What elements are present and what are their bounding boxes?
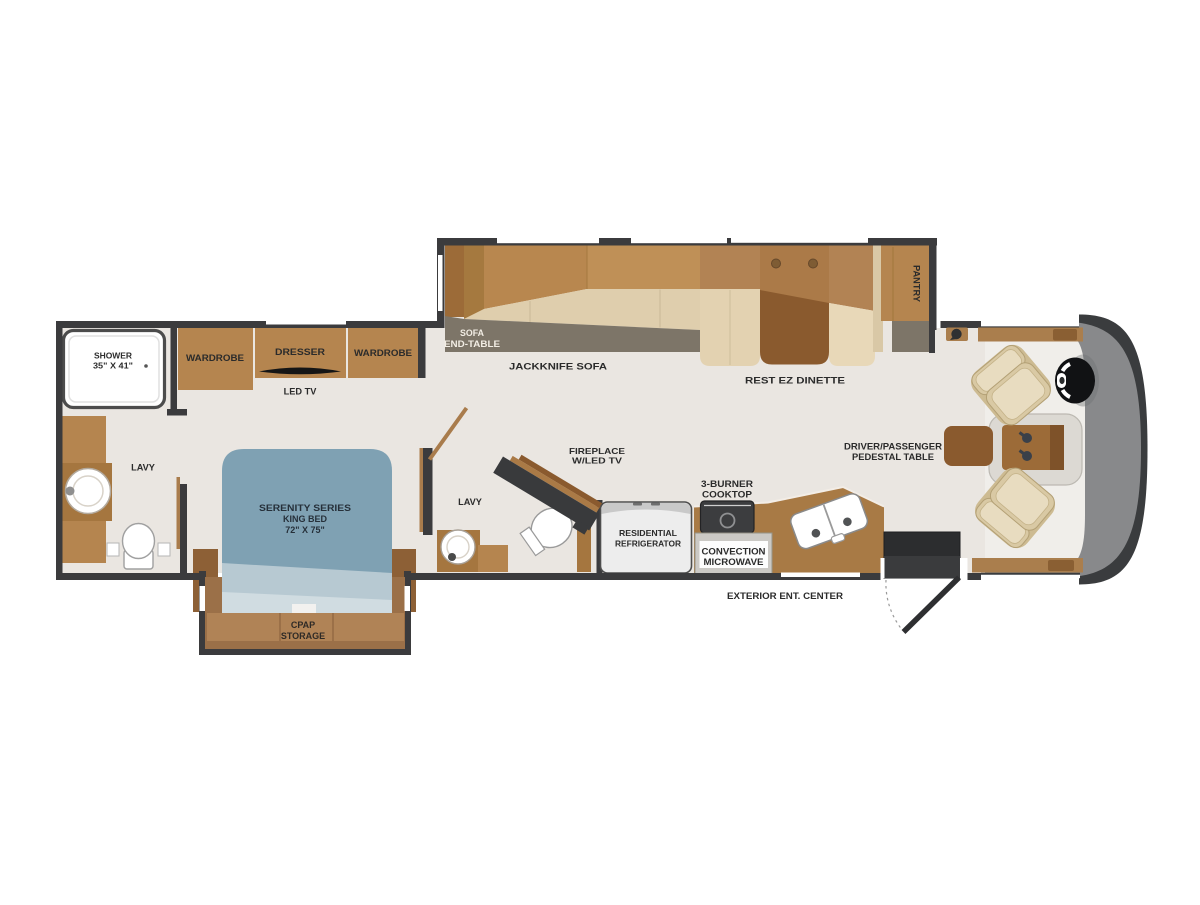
svg-text:DRESSER: DRESSER (275, 347, 326, 357)
svg-text:SHOWER: SHOWER (94, 352, 132, 361)
svg-text:LAVY: LAVY (131, 463, 155, 473)
svg-text:WARDROBE: WARDROBE (186, 353, 244, 363)
svg-text:END-TABLE: END-TABLE (444, 339, 500, 349)
svg-text:PANTRY: PANTRY (912, 265, 922, 302)
svg-text:WARDROBE: WARDROBE (354, 348, 412, 358)
svg-text:3-BURNER: 3-BURNER (701, 479, 754, 489)
svg-text:72" X 75": 72" X 75" (285, 525, 325, 535)
svg-text:DRIVER/PASSENGER: DRIVER/PASSENGER (844, 442, 943, 452)
svg-text:REFRIGERATOR: REFRIGERATOR (615, 540, 681, 549)
svg-text:EXTERIOR ENT. CENTER: EXTERIOR ENT. CENTER (727, 591, 844, 601)
svg-text:FIREPLACE: FIREPLACE (569, 446, 625, 456)
svg-text:JACKKNIFE SOFA: JACKKNIFE SOFA (509, 362, 607, 372)
svg-text:W/LED TV: W/LED TV (572, 456, 623, 466)
svg-text:SOFA: SOFA (460, 328, 485, 338)
svg-text:CPAP: CPAP (291, 620, 315, 630)
svg-text:PEDESTAL TABLE: PEDESTAL TABLE (852, 452, 934, 462)
svg-text:LED TV: LED TV (284, 387, 318, 397)
svg-text:35" X 41": 35" X 41" (93, 362, 133, 371)
svg-text:CONVECTION: CONVECTION (702, 547, 766, 557)
svg-text:MICROWAVE: MICROWAVE (704, 557, 764, 567)
svg-text:STORAGE: STORAGE (281, 631, 325, 641)
svg-text:RESIDENTIAL: RESIDENTIAL (619, 529, 677, 538)
svg-text:REST EZ DINETTE: REST EZ DINETTE (745, 376, 845, 386)
svg-text:SERENITY SERIES: SERENITY SERIES (259, 503, 351, 513)
svg-text:KING BED: KING BED (283, 514, 328, 524)
svg-text:LAVY: LAVY (458, 497, 482, 507)
svg-text:COOKTOP: COOKTOP (702, 490, 752, 500)
